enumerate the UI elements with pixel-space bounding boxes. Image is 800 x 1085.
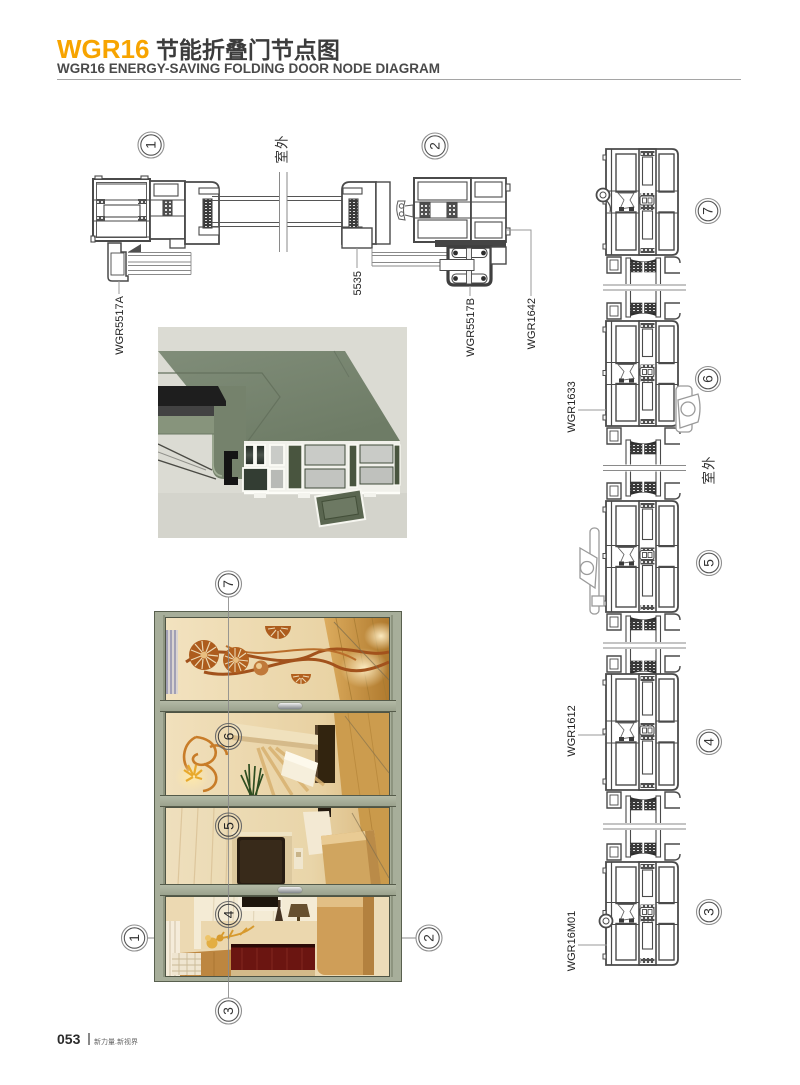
- svg-text:2: 2: [421, 934, 437, 942]
- svg-text:1: 1: [126, 934, 142, 942]
- svg-text:1: 1: [143, 141, 159, 149]
- svg-text:7: 7: [700, 207, 716, 215]
- svg-text:WGR16M01: WGR16M01: [566, 911, 578, 972]
- svg-text:6: 6: [221, 732, 237, 740]
- svg-text:5535: 5535: [352, 271, 364, 295]
- svg-text:2: 2: [427, 142, 443, 150]
- svg-text:室外: 室外: [701, 456, 717, 485]
- svg-text:WGR5517A: WGR5517A: [114, 295, 126, 354]
- svg-text:WGR1642: WGR1642: [526, 298, 538, 349]
- svg-text:WGR1633: WGR1633: [566, 381, 578, 432]
- svg-text:WGR5517B: WGR5517B: [465, 298, 477, 357]
- svg-text:4: 4: [701, 738, 717, 746]
- svg-text:6: 6: [700, 375, 716, 383]
- svg-text:室外: 室外: [274, 135, 290, 164]
- svg-text:5: 5: [221, 822, 237, 830]
- svg-text:7: 7: [220, 580, 236, 588]
- svg-text:3: 3: [220, 1007, 236, 1015]
- svg-text:WGR1612: WGR1612: [566, 705, 578, 756]
- svg-text:3: 3: [701, 908, 717, 916]
- svg-text:5: 5: [701, 559, 717, 567]
- svg-text:4: 4: [221, 910, 237, 918]
